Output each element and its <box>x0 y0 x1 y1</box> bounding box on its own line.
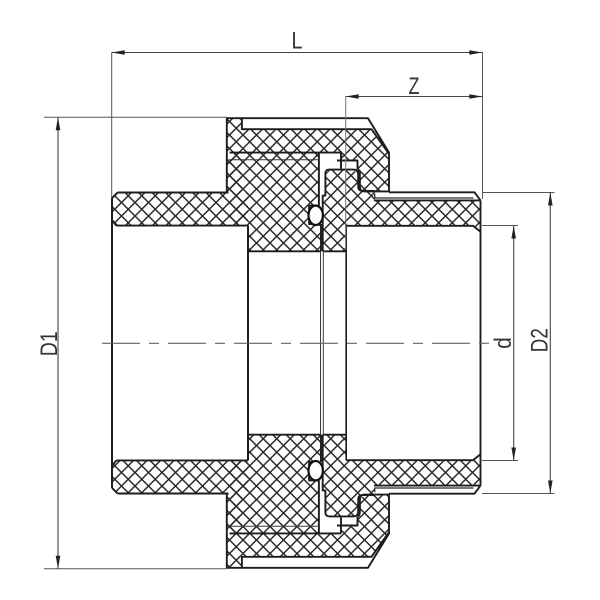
svg-text:D1: D1 <box>36 331 63 356</box>
svg-text:L: L <box>292 28 303 55</box>
svg-text:d: d <box>490 337 517 349</box>
svg-text:Z: Z <box>409 73 420 100</box>
svg-text:D2: D2 <box>527 328 554 352</box>
